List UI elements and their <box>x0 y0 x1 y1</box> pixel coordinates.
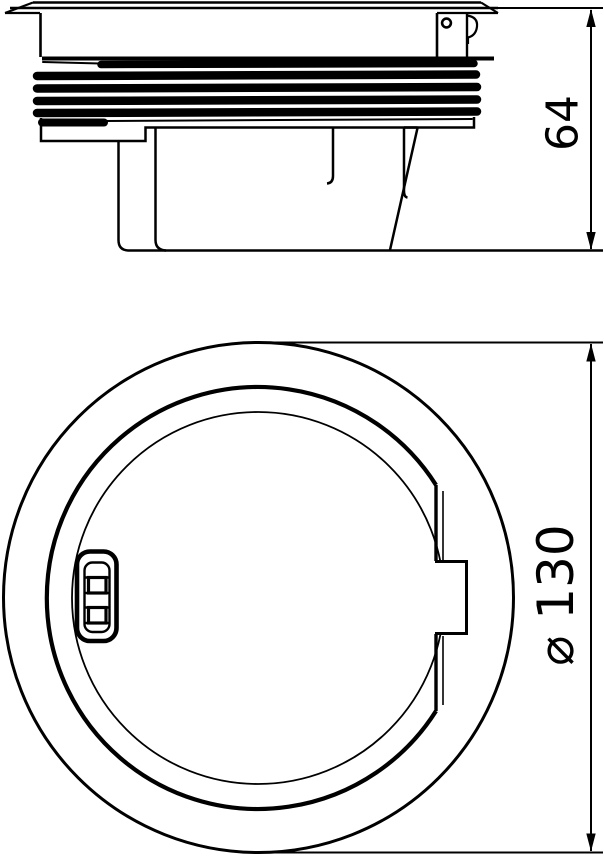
dimension-height-label: 64 <box>538 95 589 151</box>
dimension-height: 64 <box>489 8 603 250</box>
latch-slot-top <box>89 578 107 594</box>
top-view: ⌀ 130 <box>0 330 604 856</box>
side-tab <box>435 562 467 634</box>
arrow-down <box>586 834 595 852</box>
recess-edge-arc <box>47 387 436 809</box>
side-view: 64 <box>0 0 604 262</box>
arrow-up <box>586 344 595 362</box>
lid-frame <box>41 13 495 59</box>
hinge-latch-profile <box>467 16 477 45</box>
screw-hole <box>442 19 451 28</box>
flange <box>5 3 498 14</box>
housing-box <box>119 128 604 251</box>
arrow-up <box>586 9 595 27</box>
inner-hook-line <box>327 128 333 184</box>
lid-edge-circle <box>72 412 444 784</box>
thread-lines <box>37 62 477 123</box>
drawing-canvas: 64 ⌀ 130 <box>0 0 604 856</box>
latch-slot-bottom <box>89 608 107 624</box>
latch <box>77 552 117 642</box>
dimension-diameter-label: ⌀ 130 <box>527 524 585 665</box>
arrow-down <box>586 232 595 250</box>
